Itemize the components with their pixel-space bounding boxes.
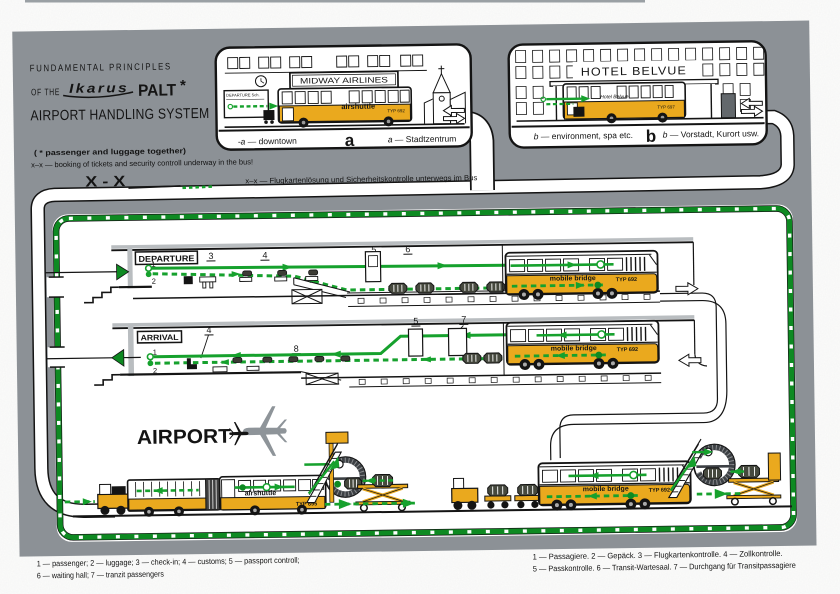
svg-text:TYP 697: TYP 697 xyxy=(657,104,675,109)
svg-text:MIDWAY AIRLINES: MIDWAY AIRLINES xyxy=(300,75,388,85)
svg-text:b — environment, spa etc.: b — environment, spa etc. xyxy=(534,130,633,141)
svg-text:3: 3 xyxy=(208,251,213,261)
svg-text:HOTEL BELVUE: HOTEL BELVUE xyxy=(581,65,687,78)
svg-text:a: a xyxy=(345,131,355,150)
svg-text:Ikarus: Ikarus xyxy=(69,80,129,96)
svg-text:2: 2 xyxy=(152,277,156,286)
svg-text:ARRIVAL: ARRIVAL xyxy=(140,333,178,343)
svg-text:mobile bridge: mobile bridge xyxy=(550,275,596,283)
svg-text:DEPARTURE Sch.: DEPARTURE Sch. xyxy=(226,92,259,97)
svg-text:5: 5 xyxy=(413,316,418,326)
svg-text:airshuttle: airshuttle xyxy=(341,102,375,111)
svg-text:b: b xyxy=(646,127,657,146)
svg-text:8: 8 xyxy=(294,344,299,354)
svg-text:X - X: X - X xyxy=(85,173,125,191)
svg-text:a — Stadtzentrum: a — Stadtzentrum xyxy=(388,133,457,144)
svg-text:TYP 692: TYP 692 xyxy=(616,277,637,283)
svg-text:DEPARTURE: DEPARTURE xyxy=(138,253,194,264)
svg-text:7: 7 xyxy=(461,314,466,324)
svg-text:AIRPORT HANDLING SYSTEM: AIRPORT HANDLING SYSTEM xyxy=(30,106,209,124)
svg-text:AIRPORT: AIRPORT xyxy=(137,426,231,449)
svg-text:b — Vorstadt, Kurort usw.: b — Vorstadt, Kurort usw. xyxy=(663,128,760,139)
svg-text:FUNDAMENTAL PRINCIPLES: FUNDAMENTAL PRINCIPLES xyxy=(30,61,172,74)
svg-text:TYP 692: TYP 692 xyxy=(617,347,638,353)
svg-text:4: 4 xyxy=(206,325,211,335)
svg-text:6: 6 xyxy=(405,244,410,254)
svg-text:mobile bridge: mobile bridge xyxy=(583,486,629,494)
svg-text:mobile bridge: mobile bridge xyxy=(551,345,597,353)
svg-text:OF THE: OF THE xyxy=(31,87,60,98)
svg-text:PALT: PALT xyxy=(138,81,176,100)
svg-text:Hotel Belvue: Hotel Belvue xyxy=(600,94,629,100)
svg-text:airshuttle: airshuttle xyxy=(245,490,277,497)
svg-text:6 — waiting hall; 7 — tranzit: 6 — waiting hall; 7 — tranzit passengers xyxy=(37,570,164,581)
svg-text:*: * xyxy=(180,77,186,94)
svg-text:TYP 692: TYP 692 xyxy=(387,108,405,113)
svg-text:-a — downtown: -a — downtown xyxy=(238,136,297,147)
svg-text:4: 4 xyxy=(262,250,267,260)
svg-text:TYP 692: TYP 692 xyxy=(649,488,670,494)
